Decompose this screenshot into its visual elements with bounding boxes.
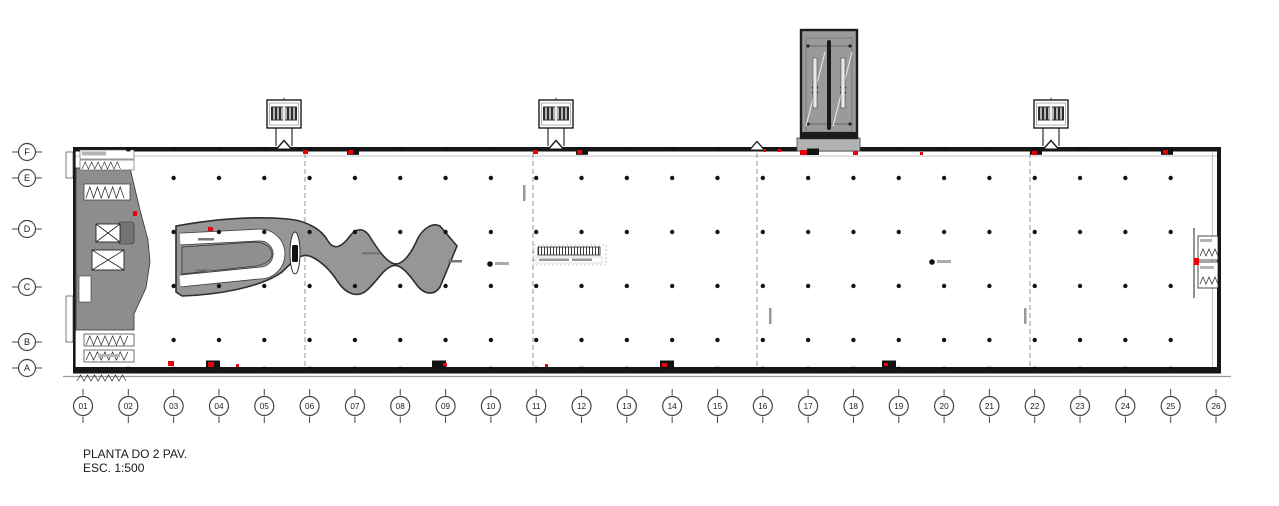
column-dot	[625, 284, 629, 288]
column-dot	[897, 338, 901, 342]
slope-label	[198, 238, 214, 241]
red-marker	[662, 363, 667, 367]
column-label: 15	[713, 402, 723, 411]
tower-node	[848, 122, 851, 125]
column-bubble-23: 23	[1071, 389, 1090, 423]
column-label: 04	[214, 402, 224, 411]
column-dot	[761, 338, 765, 342]
wall-stud	[1123, 367, 1127, 371]
wall-stud	[126, 367, 130, 371]
red-marker	[577, 150, 582, 154]
column-dot	[262, 284, 266, 288]
column-bubble-01: 01	[74, 389, 93, 423]
wall-stud	[580, 367, 584, 371]
column-dot	[715, 176, 719, 180]
red-marker	[208, 227, 213, 231]
wall-stud	[625, 147, 629, 151]
column-dot	[670, 284, 674, 288]
column-label: 13	[622, 402, 632, 411]
column-dot	[1168, 176, 1172, 180]
stair-pavilions	[267, 98, 1068, 150]
row-bubble-A: A	[12, 360, 42, 377]
wall-stud	[172, 147, 176, 151]
column-dot	[579, 176, 583, 180]
left-core	[76, 150, 150, 362]
wall-stud	[1123, 147, 1127, 151]
column-bubble-11: 11	[527, 389, 546, 423]
red-marker	[763, 149, 766, 152]
column-label: 19	[894, 402, 904, 411]
column-bubble-04: 04	[209, 389, 228, 423]
wall-stud	[761, 367, 765, 371]
column-dot	[942, 176, 946, 180]
stair-pavilion	[539, 98, 573, 149]
column-dot	[534, 284, 538, 288]
grid-row-labels: FEDCBA	[12, 144, 42, 377]
column-dot	[1033, 284, 1037, 288]
column-dot	[1078, 230, 1082, 234]
row-bubble-E: E	[12, 170, 42, 187]
wall-stud	[126, 147, 130, 151]
wall-stud	[987, 367, 991, 371]
stair-divider	[283, 107, 285, 121]
red-marker	[236, 364, 239, 367]
wall-stud	[897, 367, 901, 371]
column-bubble-02: 02	[119, 389, 138, 423]
tower-bottom-band	[801, 132, 857, 138]
stair-pavilion	[1034, 98, 1068, 149]
right-core-label	[1200, 239, 1212, 242]
column-dot	[307, 284, 311, 288]
column-bubble-17: 17	[799, 389, 818, 423]
wall-stud	[806, 367, 810, 371]
right-core-room-2	[1198, 262, 1218, 288]
wall-stud	[308, 367, 312, 371]
tower-node	[848, 44, 851, 47]
wall-stud	[942, 367, 946, 371]
column-dot	[307, 176, 311, 180]
stair-divider	[1050, 107, 1052, 121]
column-dot	[353, 230, 357, 234]
column-dot	[489, 338, 493, 342]
column-dot	[171, 338, 175, 342]
tower-node	[806, 44, 809, 47]
row-bubble-B: B	[12, 334, 42, 351]
column-dot	[171, 230, 175, 234]
grid-column-labels: 0102030405060708091011121314151617181920…	[74, 389, 1226, 423]
column-dot	[217, 230, 221, 234]
column-dot	[217, 176, 221, 180]
wall-stud	[217, 147, 221, 151]
column-dot	[307, 338, 311, 342]
column-bubble-15: 15	[708, 389, 727, 423]
right-core-label	[1200, 266, 1214, 269]
column-dot	[987, 338, 991, 342]
wall-stud	[489, 147, 493, 151]
column-dot	[398, 284, 402, 288]
column-dot	[307, 230, 311, 234]
title-block: PLANTA DO 2 PAV. ESC. 1:500	[83, 447, 187, 475]
column-dot	[1123, 230, 1127, 234]
column-dot	[715, 230, 719, 234]
column-label: 05	[260, 402, 270, 411]
column-dot	[443, 338, 447, 342]
column-label: 26	[1211, 402, 1221, 411]
column-bubble-10: 10	[481, 389, 500, 423]
column-dot	[806, 176, 810, 180]
column-dot	[851, 176, 855, 180]
column-label: 17	[804, 402, 814, 411]
wall-stud	[670, 147, 674, 151]
column-dot	[489, 176, 493, 180]
column-dot	[1123, 338, 1127, 342]
row-label: E	[24, 173, 30, 183]
column-dot	[942, 284, 946, 288]
column-dot	[353, 338, 357, 342]
wall-stud	[308, 147, 312, 151]
column-dot	[443, 284, 447, 288]
column-dot	[806, 338, 810, 342]
column-label: 23	[1075, 402, 1085, 411]
column-bubble-08: 08	[391, 389, 410, 423]
column-dot	[761, 176, 765, 180]
floor-plan-svg: FEDCBA 010203040506070809101112131415161…	[0, 0, 1279, 506]
tower-slot	[841, 58, 845, 108]
column-label: 14	[668, 402, 678, 411]
row-label: A	[24, 363, 30, 373]
column-dot	[171, 284, 175, 288]
column-label: 11	[532, 402, 541, 411]
wall-stud	[534, 367, 538, 371]
stair-divider	[555, 107, 557, 121]
column-dot	[1033, 230, 1037, 234]
column-bubble-21: 21	[980, 389, 999, 423]
column-label: 12	[577, 402, 587, 411]
column-dot	[579, 338, 583, 342]
drawing-canvas: FEDCBA 010203040506070809101112131415161…	[0, 0, 1279, 506]
slope-label	[196, 269, 212, 272]
wall-stud	[1033, 367, 1037, 371]
left-facade-box-top	[66, 152, 73, 178]
red-marker	[545, 364, 548, 367]
wall-stud	[489, 367, 493, 371]
row-label: F	[24, 147, 30, 157]
column-bubble-25: 25	[1161, 389, 1180, 423]
column-label: 21	[985, 402, 995, 411]
column-dot	[398, 338, 402, 342]
column-dot	[217, 338, 221, 342]
column-dot	[715, 338, 719, 342]
drawing-scale: ESC. 1:500	[83, 461, 145, 475]
column-label: 20	[940, 402, 950, 411]
column-bubble-18: 18	[844, 389, 863, 423]
roof-chevron-icon	[549, 141, 563, 149]
column-dot	[1078, 338, 1082, 342]
row-bubble-C: C	[12, 279, 42, 296]
column-dot	[987, 230, 991, 234]
column-dot	[262, 338, 266, 342]
column-dot	[715, 284, 719, 288]
column-dot	[1168, 338, 1172, 342]
wall-stud	[987, 147, 991, 151]
red-marker	[443, 363, 447, 366]
left-facade-box-bottom	[66, 296, 73, 342]
wall-stud	[1078, 367, 1082, 371]
column-dot	[670, 338, 674, 342]
bottom-wall	[73, 367, 1221, 374]
column-dot	[217, 284, 221, 288]
wall-stud	[398, 147, 402, 151]
column-dot	[534, 338, 538, 342]
column-bubble-24: 24	[1116, 389, 1135, 423]
column-label: 22	[1030, 402, 1040, 411]
column-label: 08	[396, 402, 406, 411]
column-dot	[761, 230, 765, 234]
section-marker-label	[937, 260, 951, 263]
red-marker	[800, 150, 807, 155]
column-label: 01	[78, 402, 88, 411]
column-dot	[942, 338, 946, 342]
column-dot	[489, 230, 493, 234]
column-dot	[625, 176, 629, 180]
column-label: 06	[305, 402, 315, 411]
column-bubble-06: 06	[300, 389, 319, 423]
column-dot	[443, 176, 447, 180]
column-dot	[489, 284, 493, 288]
column-bubble-07: 07	[345, 389, 364, 423]
tower-door-box	[807, 149, 819, 156]
red-marker	[533, 150, 538, 154]
column-dot	[353, 284, 357, 288]
red-marker	[1032, 151, 1037, 155]
column-dot	[262, 176, 266, 180]
core-small-room	[79, 276, 91, 302]
red-marker	[168, 361, 174, 366]
row-bubble-F: F	[12, 144, 42, 161]
column-dot	[761, 284, 765, 288]
column-dot	[1123, 176, 1127, 180]
column-dot	[897, 230, 901, 234]
column-dot	[670, 176, 674, 180]
column-dot	[579, 230, 583, 234]
column-dot	[625, 230, 629, 234]
column-dot	[851, 230, 855, 234]
left-wall	[73, 147, 76, 373]
wall-stud	[897, 147, 901, 151]
column-dot	[398, 230, 402, 234]
column-bubble-12: 12	[572, 389, 591, 423]
column-dot	[987, 176, 991, 180]
roof-chevron-icon	[1044, 141, 1058, 149]
column-label: 10	[486, 402, 496, 411]
column-label: 18	[849, 402, 859, 411]
red-marker	[1194, 258, 1199, 265]
row-bubble-D: D	[12, 221, 42, 238]
red-marker	[133, 211, 137, 216]
column-dot	[1168, 284, 1172, 288]
wall-stud	[851, 367, 855, 371]
red-marker	[1163, 150, 1168, 154]
red-marker	[778, 149, 781, 152]
wall-stud	[715, 367, 719, 371]
column-dot	[171, 176, 175, 180]
wall-stud	[625, 367, 629, 371]
blob-label	[448, 260, 462, 263]
column-label: 09	[441, 402, 451, 411]
row-label: C	[24, 282, 31, 292]
column-dot	[398, 176, 402, 180]
wall-stud	[1078, 147, 1082, 151]
wall-stud	[1169, 367, 1173, 371]
tower-base	[797, 138, 860, 151]
drawing-title: PLANTA DO 2 PAV.	[83, 447, 187, 461]
column-dot	[534, 230, 538, 234]
joint-note	[523, 185, 526, 201]
wall-stud	[172, 367, 176, 371]
column-bubble-19: 19	[889, 389, 908, 423]
column-dot	[1078, 284, 1082, 288]
red-marker	[208, 362, 214, 367]
stair-pavilion	[267, 98, 301, 149]
ramp-tower	[797, 30, 860, 155]
wall-stud	[262, 367, 266, 371]
column-label: 16	[758, 402, 768, 411]
column-bubble-03: 03	[164, 389, 183, 423]
joint-note	[1024, 308, 1027, 324]
column-dot	[942, 230, 946, 234]
red-marker	[348, 150, 353, 154]
red-marker	[884, 363, 888, 366]
escalator	[534, 245, 606, 265]
tower-slot	[813, 58, 817, 108]
column-dot	[534, 176, 538, 180]
column-dot	[579, 284, 583, 288]
column-bubble-16: 16	[753, 389, 772, 423]
column-dot	[806, 230, 810, 234]
column-dot	[443, 230, 447, 234]
column-dot	[897, 176, 901, 180]
wall-stud	[262, 147, 266, 151]
row-label: B	[24, 337, 30, 347]
column-bubble-14: 14	[663, 389, 682, 423]
red-marker	[303, 150, 308, 154]
column-label: 25	[1166, 402, 1176, 411]
column-bubble-05: 05	[255, 389, 274, 423]
column-bubble-09: 09	[436, 389, 455, 423]
column-dot	[1123, 284, 1127, 288]
wall-stud	[715, 147, 719, 151]
row-label: D	[24, 224, 31, 234]
wall-stud	[942, 147, 946, 151]
column-bubble-26: 26	[1207, 389, 1226, 423]
escalator-label	[572, 259, 592, 262]
column-dot	[1033, 176, 1037, 180]
column-bubble-13: 13	[617, 389, 636, 423]
column-dot	[851, 284, 855, 288]
escalator-label	[539, 259, 569, 262]
column-bubble-20: 20	[935, 389, 954, 423]
column-dot	[806, 284, 810, 288]
wall-stud	[444, 147, 448, 151]
section-marker-icon	[929, 259, 935, 265]
column-dot	[897, 284, 901, 288]
column-label: 24	[1121, 402, 1131, 411]
column-label: 03	[169, 402, 179, 411]
column-dot	[353, 176, 357, 180]
column-dot	[851, 338, 855, 342]
column-label: 07	[350, 402, 360, 411]
column-dot	[670, 230, 674, 234]
ramp-turn-core	[292, 245, 298, 262]
column-bubble-22: 22	[1025, 389, 1044, 423]
column-dot	[1168, 230, 1172, 234]
wall-stud	[353, 367, 357, 371]
section-marker-label	[495, 262, 509, 265]
joint-note	[769, 308, 772, 324]
column-label: 02	[124, 402, 134, 411]
roof-chevron-icon	[277, 141, 291, 149]
red-marker	[853, 151, 858, 155]
core-bottom-label	[98, 354, 120, 357]
core-top-room-label	[82, 152, 106, 156]
column-dot	[262, 230, 266, 234]
joint-chevron-icon	[750, 142, 764, 150]
blob-label	[362, 252, 380, 255]
column-dot	[1033, 338, 1037, 342]
wall-stud	[398, 367, 402, 371]
column-dot	[1078, 176, 1082, 180]
red-marker	[920, 152, 923, 155]
column-dot	[987, 284, 991, 288]
column-dot	[625, 338, 629, 342]
tower-divider	[827, 40, 831, 130]
section-marker-icon	[487, 261, 493, 267]
escalator-treads	[538, 247, 600, 255]
